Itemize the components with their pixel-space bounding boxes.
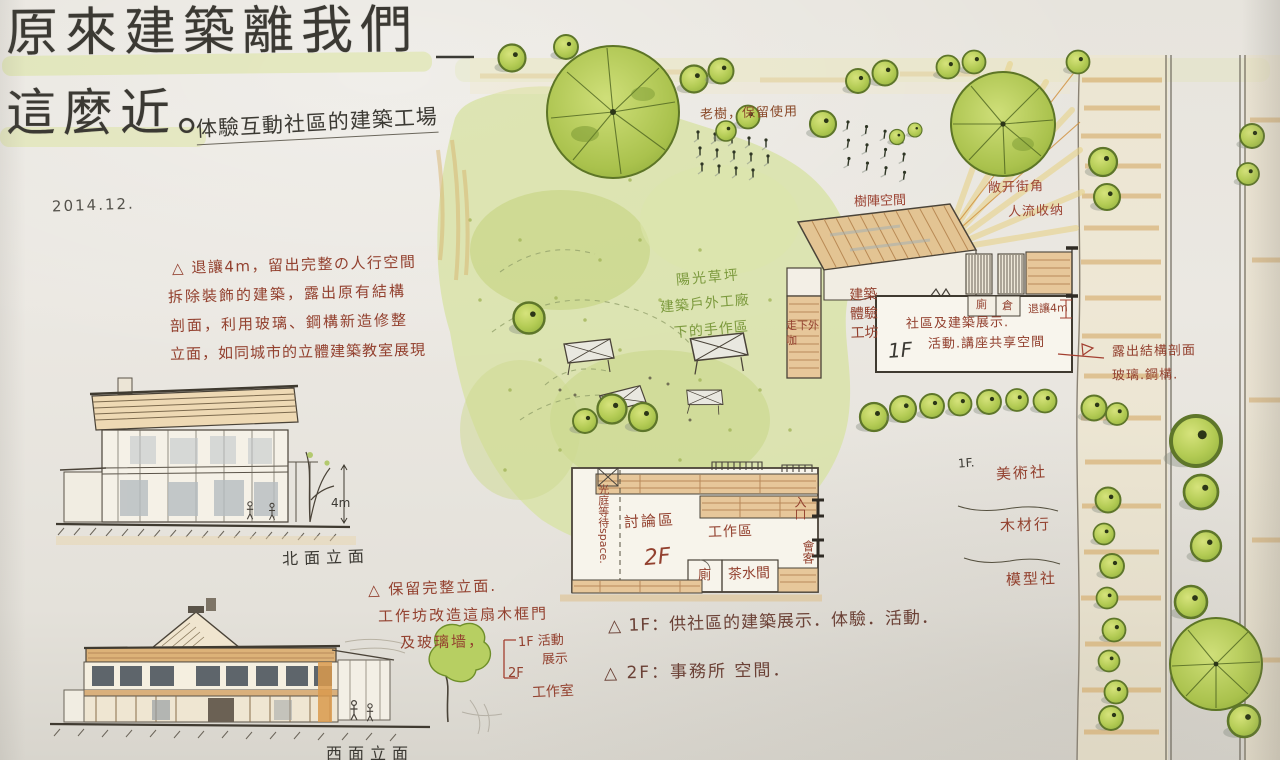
shops-floor-label: 1F. [957,455,974,471]
shop-item-3: 模型社 [1006,569,1058,590]
cafe-label: 走下外咖 [786,318,822,348]
building2-entry-label: 入口 [792,496,807,520]
facade-bracket-1f-label2: 展示 [542,651,569,669]
building2-work-label: 工作區 [708,523,754,542]
north-elevation-caption: 北面立面 [282,546,371,569]
date-label: 2014.12. [52,195,135,217]
facade-bracket-2f-label: 工作室 [532,683,575,703]
height-dimension-label: 4m [331,496,350,511]
building1-label1: 社區及建築展示. [906,315,1009,333]
street-corner-label-1: 敞开街角 [988,179,1045,197]
building2-wc-label: 廁 [698,568,711,584]
old-tree-label: 老樹，保留使用 [700,104,799,124]
facade-bracket-2f: 2F [508,666,524,682]
building2-meeting-label: 會客 [800,540,815,564]
structure-note-line1: 露出結構剖面 [1112,343,1196,361]
west-elevation-caption: 西面立面 [326,744,414,760]
shop-item-1: 美術社 [996,463,1048,484]
north-elevation [56,378,356,545]
title-line1: 原來建築離我們 [6,0,420,67]
facade-bracket-1f-label: 1F 活動 [518,633,565,652]
building2-pantry-label: 茶水間 [728,565,771,584]
building2-waiting-label: 光庭等待space. [596,484,610,614]
presentation-board: 原來建築離我們 這麼近。 体驗互動社區的建築工場 2014.12. △ 退讓4m… [0,0,1280,760]
setback-dimension-label: 退讓4m [1028,301,1068,316]
building1-floor-label: 1F [887,337,913,364]
building1-room2-label: 倉 [1002,299,1013,313]
facade-note-line2: 工作坊改造這扇木框門 [378,605,548,627]
workshop-label: 建築體驗工坊 [849,285,885,343]
facade-note-line3: 及玻璃墙， [400,632,485,652]
tree-array-label: 樹陣空間 [854,193,907,211]
structure-note-line2: 玻璃.鋼構. [1112,367,1179,384]
shop-item-2: 木材行 [1000,515,1052,536]
street-corner-label-2: 人流收纳 [1008,203,1065,221]
legend-line2: △ 2F：事務所 空間． [604,660,792,685]
building2-floor-label: 2F [643,543,672,573]
building1-label2: 活動.講座共享空間 [928,335,1045,353]
building2-discussion-label: 討論區 [624,511,676,532]
building1-room1-label: 廁 [976,298,987,312]
